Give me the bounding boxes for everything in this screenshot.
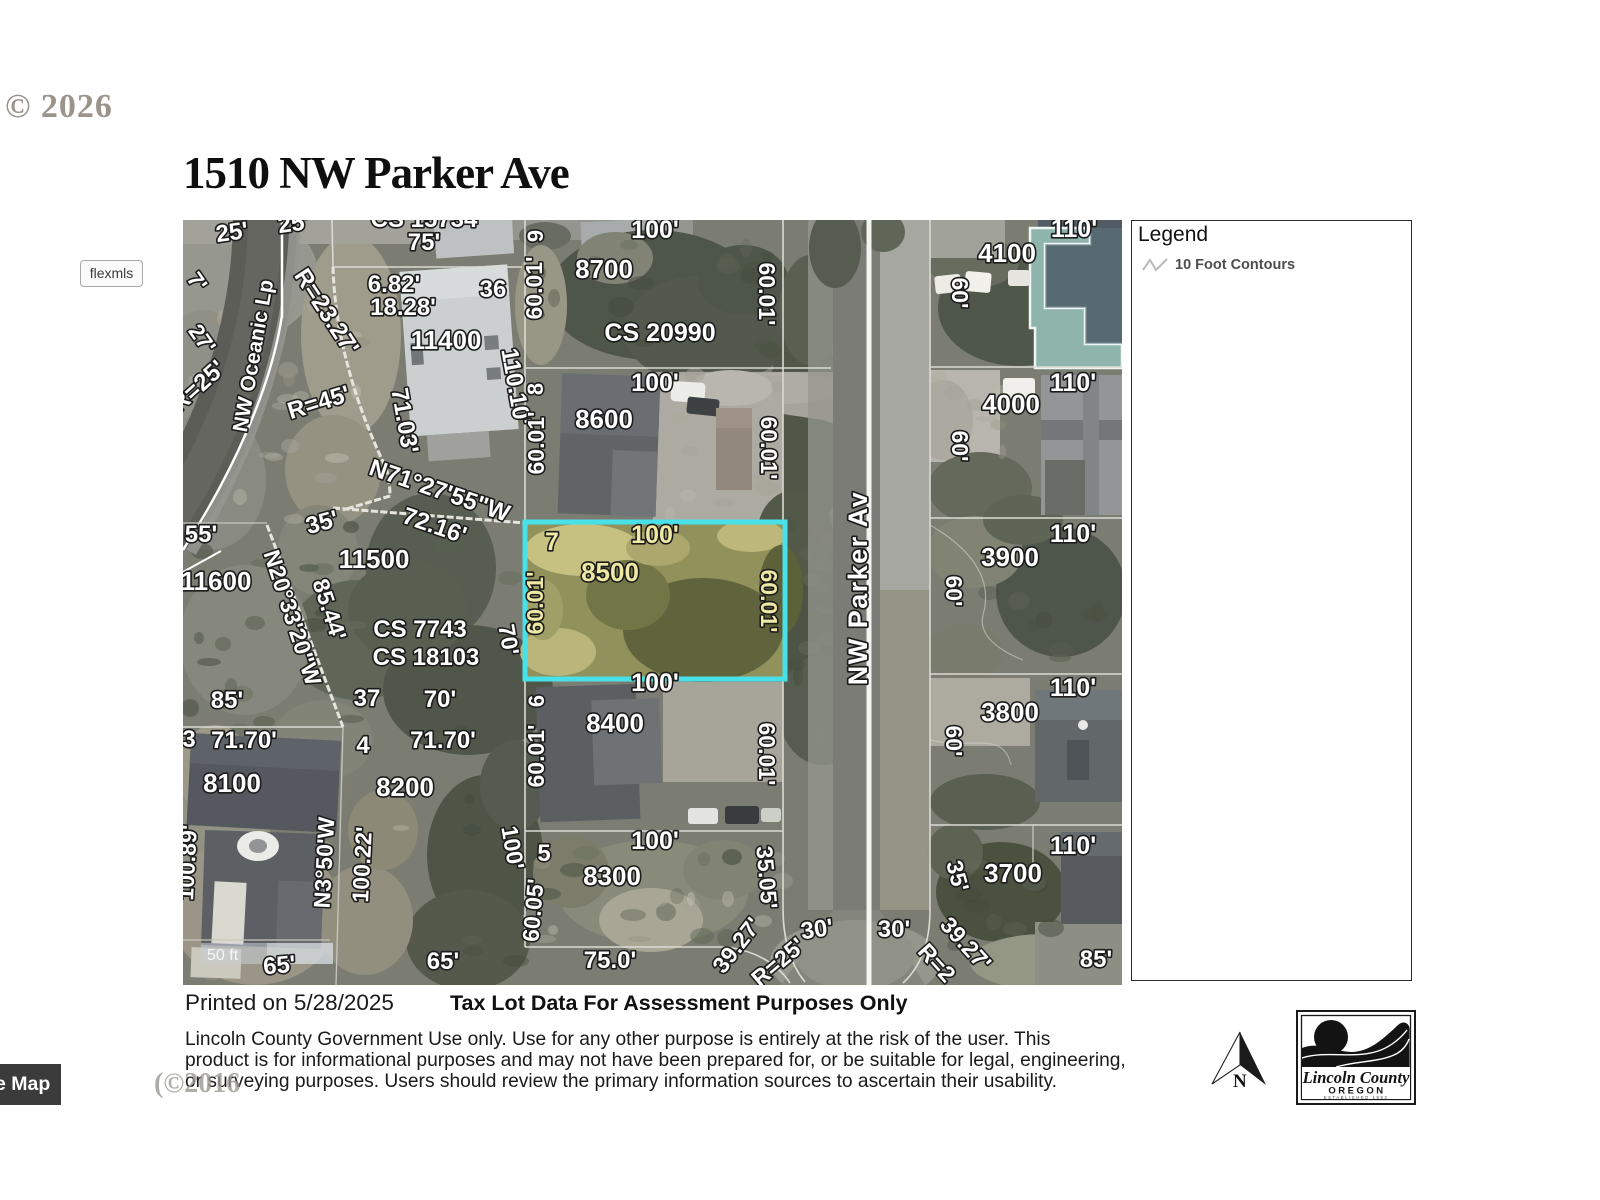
svg-text:CS 20990: CS 20990 xyxy=(604,319,715,347)
svg-text:55': 55' xyxy=(185,521,217,548)
svg-text:N: N xyxy=(1233,1071,1247,1092)
svg-text:ESTABLISHED 1893: ESTABLISHED 1893 xyxy=(1324,1095,1389,1100)
svg-text:4: 4 xyxy=(356,732,370,759)
svg-text:110': 110' xyxy=(1050,520,1096,548)
svg-text:75.0': 75.0' xyxy=(584,947,636,974)
svg-text:60': 60' xyxy=(941,725,967,756)
svg-text:8700: 8700 xyxy=(575,254,633,284)
svg-text:60.01': 60.01' xyxy=(754,262,780,325)
svg-text:60.01': 60.01' xyxy=(523,411,549,474)
svg-text:4100: 4100 xyxy=(978,238,1036,268)
svg-text:60.01': 60.01' xyxy=(521,256,547,319)
svg-text:60': 60' xyxy=(947,277,973,308)
svg-text:8200: 8200 xyxy=(376,772,434,802)
svg-text:60.01': 60.01' xyxy=(522,571,548,634)
svg-text:8: 8 xyxy=(523,383,548,395)
svg-text:60.01': 60.01' xyxy=(523,724,549,787)
svg-text:8500: 8500 xyxy=(581,557,639,587)
svg-text:60.01': 60.01' xyxy=(754,722,780,785)
svg-text:3900: 3900 xyxy=(981,542,1039,572)
svg-text:37: 37 xyxy=(354,685,381,712)
svg-text:8100: 8100 xyxy=(203,768,261,798)
svg-text:71.70': 71.70' xyxy=(410,727,476,754)
svg-text:30': 30' xyxy=(878,916,910,943)
svg-text:11500: 11500 xyxy=(339,544,410,574)
svg-text:70': 70' xyxy=(424,686,456,713)
svg-text:3800: 3800 xyxy=(981,697,1039,727)
svg-text:110': 110' xyxy=(1050,369,1096,397)
svg-text:8400: 8400 xyxy=(586,708,644,738)
svg-text:CS 18103: CS 18103 xyxy=(373,644,480,671)
svg-text:8600: 8600 xyxy=(575,404,633,434)
svg-text:36: 36 xyxy=(480,276,507,303)
svg-text:NW Parker Av: NW Parker Av xyxy=(843,491,873,686)
svg-text:30': 30' xyxy=(799,914,835,945)
svg-text:3: 3 xyxy=(183,726,196,753)
svg-text:7: 7 xyxy=(545,528,559,556)
svg-text:9: 9 xyxy=(523,230,548,242)
svg-text:4000: 4000 xyxy=(982,389,1040,419)
svg-text:65': 65' xyxy=(262,951,297,981)
svg-text:60': 60' xyxy=(947,430,973,461)
svg-text:100': 100' xyxy=(631,220,679,244)
svg-text:11400: 11400 xyxy=(411,325,482,355)
svg-text:110': 110' xyxy=(1050,674,1096,702)
svg-text:3700: 3700 xyxy=(984,858,1042,888)
svg-text:70': 70' xyxy=(493,622,524,657)
svg-text:35.05': 35.05' xyxy=(751,845,782,910)
svg-text:75': 75' xyxy=(408,229,440,256)
svg-text:65': 65' xyxy=(427,948,459,975)
svg-text:85': 85' xyxy=(211,687,243,714)
svg-text:8300: 8300 xyxy=(583,861,641,891)
svg-text:60.01': 60.01' xyxy=(756,416,782,479)
svg-text:18.28': 18.28' xyxy=(370,294,436,321)
svg-text:11600: 11600 xyxy=(183,566,251,596)
svg-text:100': 100' xyxy=(631,521,679,549)
svg-text:60.05': 60.05' xyxy=(517,878,548,943)
svg-text:5: 5 xyxy=(537,840,550,867)
svg-text:100': 100' xyxy=(631,669,679,697)
svg-text:100.22': 100.22' xyxy=(347,826,377,903)
svg-text:100': 100' xyxy=(631,827,679,855)
svg-text:Lincoln County: Lincoln County xyxy=(1302,1068,1410,1087)
svg-text:6: 6 xyxy=(524,695,549,707)
svg-text:100': 100' xyxy=(631,369,679,397)
svg-text:N3°50'W: N3°50'W xyxy=(309,816,340,909)
svg-text:60': 60' xyxy=(941,575,967,606)
svg-text:85': 85' xyxy=(1080,946,1112,973)
svg-text:110': 110' xyxy=(1050,832,1096,860)
svg-text:25': 25' xyxy=(214,220,250,248)
svg-text:71.70': 71.70' xyxy=(211,727,277,754)
svg-text:110': 110' xyxy=(1051,220,1097,243)
svg-text:60.01': 60.01' xyxy=(756,569,782,632)
svg-text:CS 7743: CS 7743 xyxy=(373,616,466,643)
